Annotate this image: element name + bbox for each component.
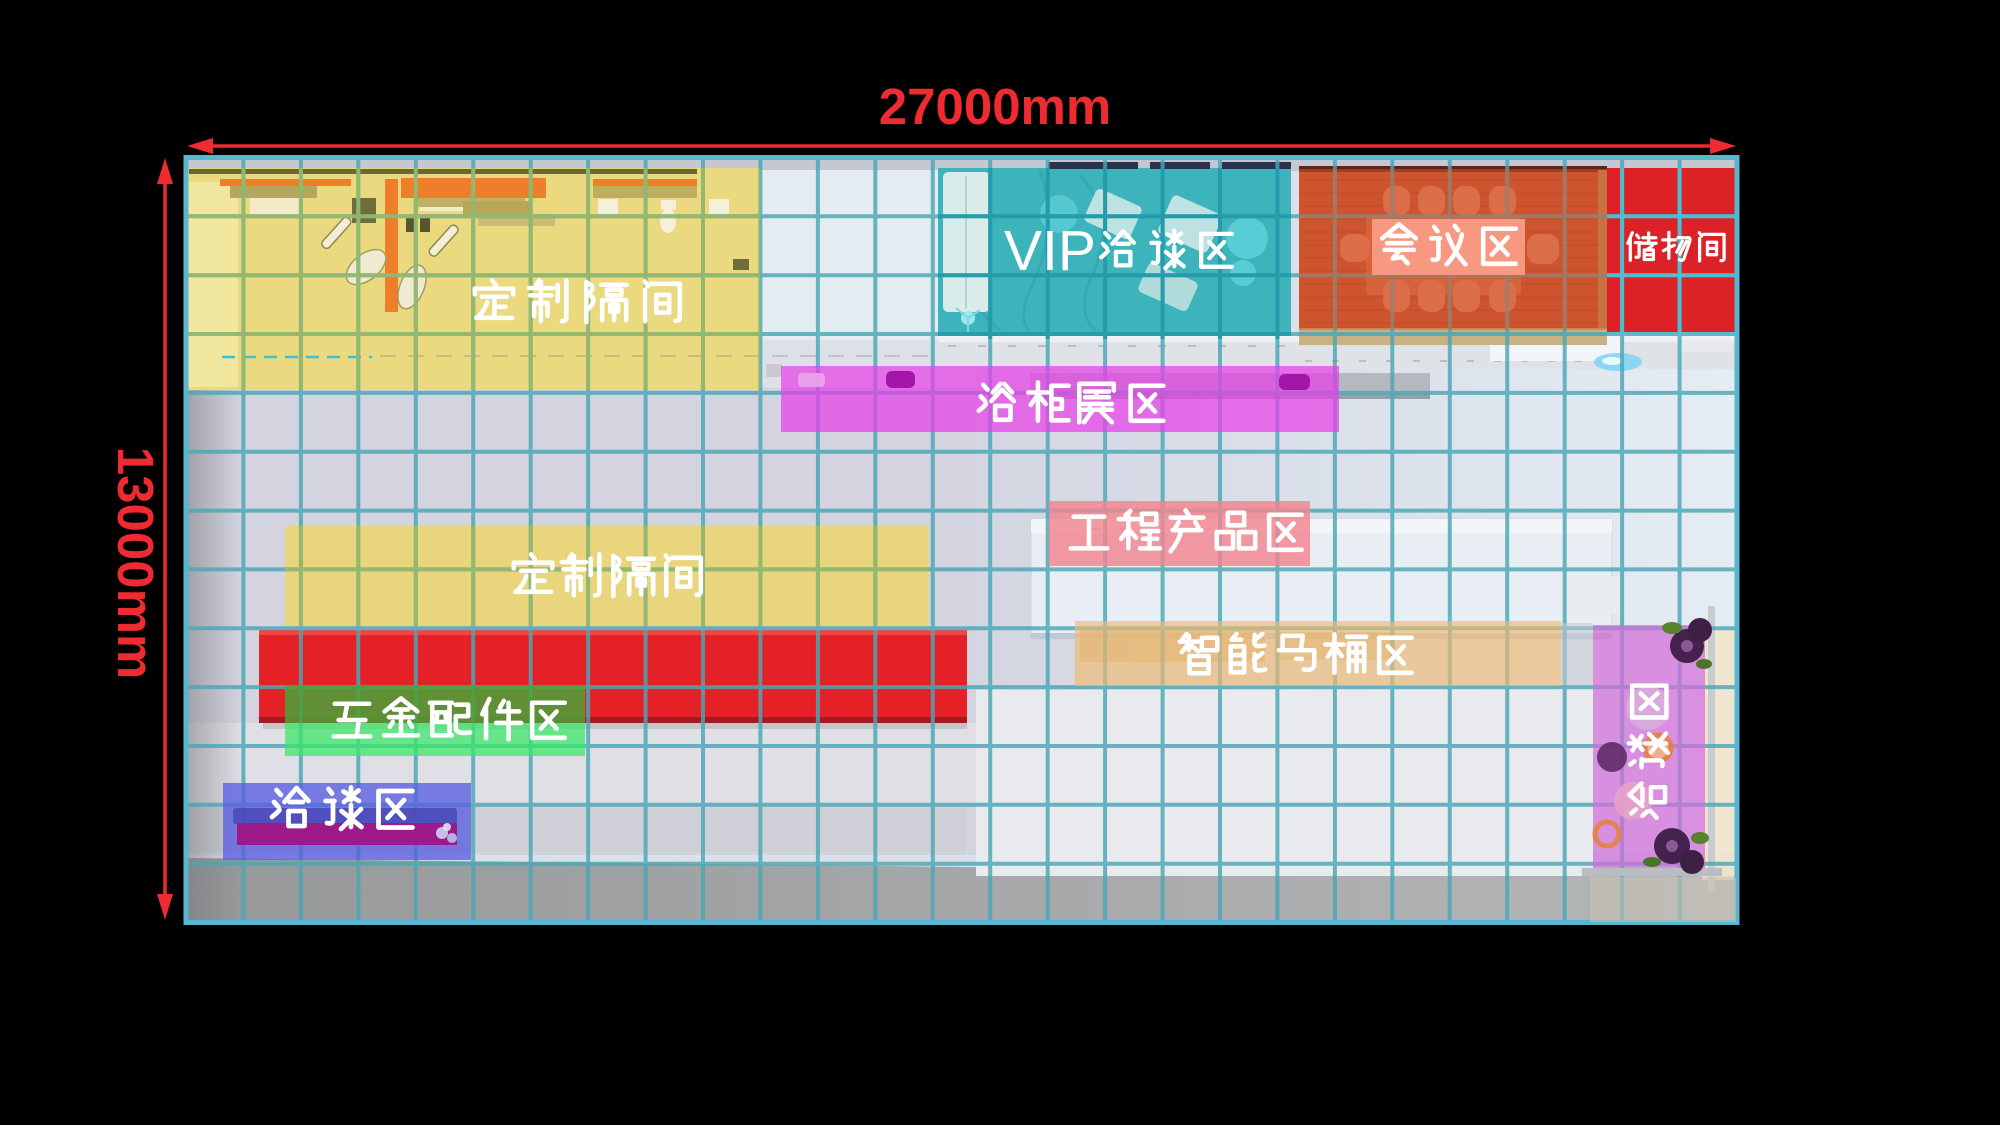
svg-text:VIP: VIP xyxy=(1004,219,1096,283)
svg-text:27000mm: 27000mm xyxy=(879,78,1112,135)
svg-text:13000mm: 13000mm xyxy=(107,447,164,680)
